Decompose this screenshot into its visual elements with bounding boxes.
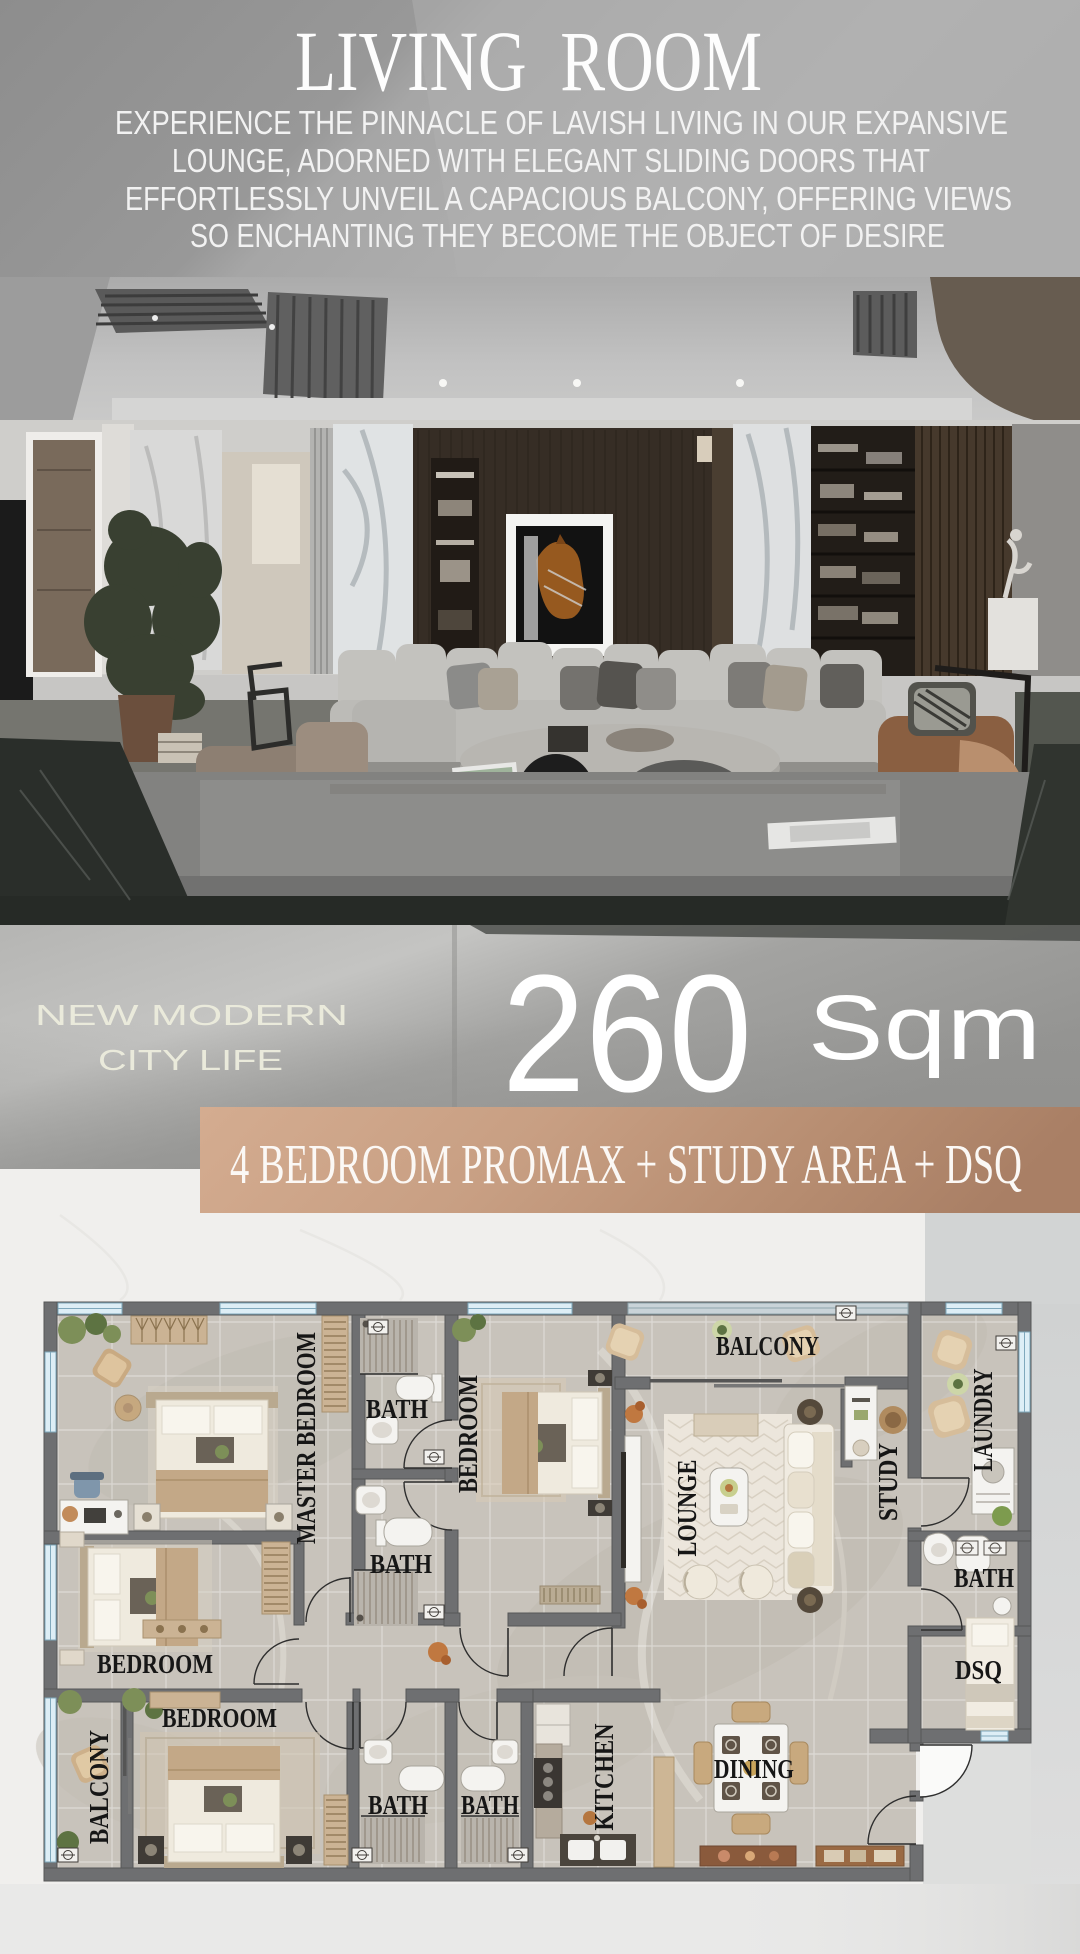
svg-text:LAUNDRY: LAUNDRY — [968, 1369, 998, 1472]
svg-text:BEDROOM: BEDROOM — [162, 1703, 277, 1733]
svg-text:SO ENCHANTING THEY BECOME THE: SO ENCHANTING THEY BECOME THE OBJECT OF … — [190, 217, 945, 254]
svg-text:NEW MODERN: NEW MODERN — [35, 1000, 348, 1032]
svg-text:MASTER BEDROOM: MASTER BEDROOM — [291, 1332, 321, 1544]
svg-text:EFFORTLESSLY UNVEIL A CAPACIOU: EFFORTLESSLY UNVEIL A CAPACIOUS BALCONY,… — [125, 180, 1012, 217]
svg-text:LOUNGE, ADORNED WITH ELEGANT S: LOUNGE, ADORNED WITH ELEGANT SLIDING DOO… — [172, 142, 930, 179]
svg-text:BATH: BATH — [370, 1549, 432, 1579]
svg-text:DSQ: DSQ — [955, 1655, 1002, 1685]
svg-text:Sqm: Sqm — [808, 977, 1041, 1079]
svg-text:BATH: BATH — [954, 1563, 1014, 1593]
svg-text:BALCONY: BALCONY — [716, 1331, 819, 1361]
svg-text:4 BEDROOM PROMAX + STUDY AREA: 4 BEDROOM PROMAX + STUDY AREA + DSQ — [230, 1134, 1022, 1196]
svg-text:STUDY: STUDY — [873, 1443, 903, 1521]
svg-text:LIVING ROOM: LIVING ROOM — [295, 13, 762, 109]
svg-text:CITY LIFE: CITY LIFE — [98, 1045, 283, 1077]
svg-text:EXPERIENCE THE PINNACLE OF LAV: EXPERIENCE THE PINNACLE OF LAVISH LIVING… — [115, 104, 1008, 141]
svg-text:LOUNGE: LOUNGE — [672, 1460, 702, 1557]
svg-text:BEDROOM: BEDROOM — [97, 1649, 213, 1679]
svg-text:BATH: BATH — [368, 1790, 428, 1820]
svg-text:BATH: BATH — [461, 1790, 519, 1820]
svg-text:BALCONY: BALCONY — [84, 1730, 114, 1844]
svg-text:BATH: BATH — [366, 1394, 428, 1424]
svg-text:BEDROOM: BEDROOM — [453, 1375, 483, 1493]
svg-text:DINING: DINING — [714, 1754, 794, 1784]
svg-text:260: 260 — [502, 941, 752, 1127]
svg-text:KITCHEN: KITCHEN — [589, 1723, 619, 1830]
